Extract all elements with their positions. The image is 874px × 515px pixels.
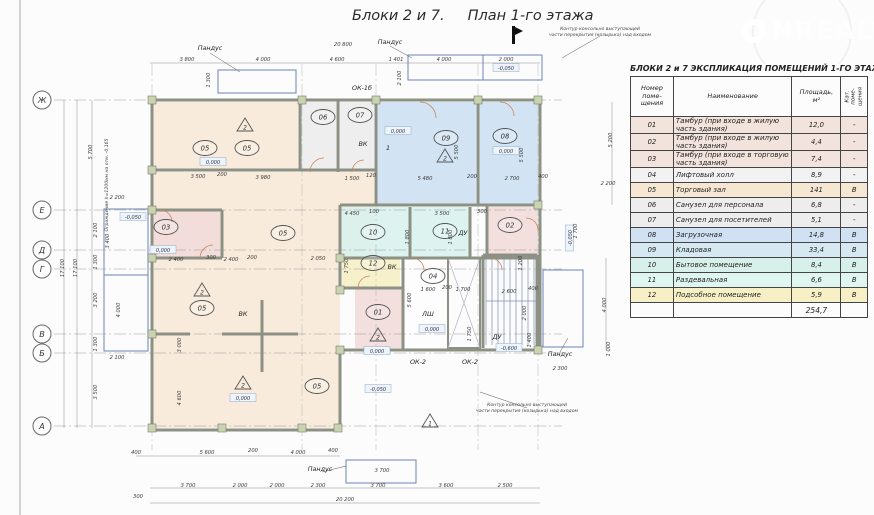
- room-tag-number: 07: [356, 111, 365, 119]
- column-marker: [334, 424, 342, 432]
- dimension-label: 400: [538, 174, 549, 180]
- dimension-label: 1 750: [467, 326, 473, 342]
- onrealt-watermark: NREALT: [742, 16, 874, 45]
- room-name-cell: Санузел для посетителей: [673, 213, 792, 228]
- dimension-label: 4 450: [345, 211, 361, 217]
- plan-label: 1: [386, 144, 390, 152]
- dimension-label: 1 300: [206, 72, 212, 88]
- dimension-label: 2 300: [311, 483, 327, 489]
- room-area-cell: 8,4: [792, 258, 841, 273]
- room-area-cell: 12,0: [792, 117, 841, 134]
- column-marker: [298, 96, 306, 104]
- column-marker: [148, 96, 156, 104]
- axis-marker-label: Д: [38, 246, 45, 255]
- dimension-label: 2 050: [311, 256, 327, 262]
- svg-text:Контур консольно выступающей: Контур консольно выступающей: [560, 26, 640, 32]
- header-room-number: Номер поме- щения: [631, 77, 674, 117]
- triangle-mark-number: 2: [443, 156, 447, 163]
- note-text: Контур консольно выступающейчасти перекр…: [476, 402, 579, 414]
- level-mark: 0,000: [200, 158, 226, 167]
- room-category-cell: В: [841, 273, 868, 288]
- level-mark: -0,050: [120, 213, 146, 222]
- table-title: БЛОКИ 2 и 7 ЭКСПЛИКАЦИЯ ПОМЕЩЕНИЙ 1-ГО Э…: [630, 64, 870, 73]
- room-name-cell: Загрузочная: [673, 228, 792, 243]
- room-tag-number: 09: [442, 134, 451, 142]
- dimension-label: 3 980: [256, 175, 272, 181]
- triangle-mark-number: 2: [200, 290, 204, 297]
- svg-text:0,000: 0,000: [156, 248, 170, 254]
- plan-label: Пандус: [198, 44, 223, 52]
- svg-text:-0,600: -0,600: [501, 346, 517, 352]
- dimension-label: 4 000: [291, 450, 307, 456]
- room-tag-number: 05: [243, 144, 252, 152]
- dimension-label: 4 600: [177, 390, 183, 406]
- table-row: 09Кладовая33,4В: [631, 243, 868, 258]
- room-area-cell: 141: [792, 183, 841, 198]
- room-number-cell: 06: [631, 198, 674, 213]
- column-marker: [534, 346, 542, 354]
- dimension-label: 1 300: [93, 254, 99, 270]
- column-marker: [148, 254, 156, 262]
- svg-text:0,000: 0,000: [370, 349, 384, 355]
- axis-marker-label: Ж: [37, 96, 47, 105]
- dimension-label: 5 700: [88, 144, 94, 160]
- room-number-cell: 09: [631, 243, 674, 258]
- dimension-label: 3 600: [439, 483, 455, 489]
- total-empty-num: [631, 303, 674, 318]
- room-category-cell: -: [841, 168, 868, 183]
- dimension-label: 400: [131, 450, 142, 456]
- table-row: 07Санузел для посетителей5,1-: [631, 213, 868, 228]
- room-area-cell: 6,8: [792, 198, 841, 213]
- room-area-cell: 8,9: [792, 168, 841, 183]
- room-number-cell: 02: [631, 134, 674, 151]
- axis-marker-label: В: [39, 330, 45, 339]
- dimension-label: 2 000: [499, 57, 515, 63]
- triangle-mark-number: 1: [428, 421, 432, 428]
- note-text: Контур консольно выступающейчасти перекр…: [549, 26, 652, 38]
- dimension-label: 1 300: [93, 336, 99, 352]
- dimension-label: 5 200: [608, 132, 614, 148]
- room-area-cell: 33,4: [792, 243, 841, 258]
- dimension-label: 1 200: [518, 255, 524, 271]
- triangle-mark-number: 2: [243, 125, 247, 132]
- room-region-09: [376, 102, 476, 204]
- dimension-label: 1 500: [345, 176, 361, 182]
- room-category-cell: -: [841, 134, 868, 151]
- dimension-label: 1 400: [527, 332, 533, 348]
- column-marker: [336, 286, 344, 294]
- table-row: 12Подсобное помещение5,9В: [631, 288, 868, 303]
- dimension-label: 5 480: [418, 176, 434, 182]
- room-tag-number: 08: [501, 132, 510, 140]
- room-category-cell: -: [841, 151, 868, 168]
- header-room-category: Кат. поме- щения: [841, 77, 868, 117]
- dimension-label: 300: [206, 255, 217, 261]
- level-mark: 0,000: [419, 325, 445, 334]
- axis-marker-label: Г: [40, 265, 45, 274]
- room-number-cell: 12: [631, 288, 674, 303]
- room-category-cell: В: [841, 228, 868, 243]
- dimension-label: 1 800: [405, 229, 411, 245]
- dimension-label: 200: [247, 255, 258, 261]
- dimension-label: 2 700: [505, 176, 521, 182]
- room-tag-number: 05: [313, 382, 322, 390]
- dimension-label: 400: [328, 448, 339, 454]
- dimension-label: 3 700: [371, 483, 387, 489]
- column-marker: [148, 330, 156, 338]
- dimension-label: 3 000: [177, 337, 183, 353]
- dimension-label: 5 500: [454, 144, 460, 160]
- dimension-label: 200: [248, 448, 259, 454]
- column-marker: [148, 206, 156, 214]
- room-number-cell: 07: [631, 213, 674, 228]
- room-tag-number: 12: [369, 259, 378, 267]
- dimension-label: 2 200: [601, 181, 617, 187]
- level-mark: -0,600: [496, 344, 522, 353]
- dimension-label: 2 100: [93, 222, 99, 238]
- svg-text:-0,050: -0,050: [370, 387, 386, 393]
- svg-text:0,000: 0,000: [206, 160, 220, 166]
- table-row: 04Лифтовый холл8,9-: [631, 168, 868, 183]
- dimension-label: 4 600: [330, 57, 346, 63]
- dimension-label: 100: [369, 209, 380, 215]
- plan-label: ДУ: [492, 333, 503, 341]
- room-name-cell: Раздевальная: [673, 273, 792, 288]
- dimension-label: 4 000: [256, 57, 272, 63]
- plan-label: ДУ: [458, 229, 469, 237]
- table-row: 06Санузел для персонала6,8-: [631, 198, 868, 213]
- column-marker: [298, 424, 306, 432]
- page-title: Блоки 2 и 7. План 1-го этажа: [352, 8, 594, 24]
- dimension-label: 3 500: [191, 174, 207, 180]
- column-marker: [534, 96, 542, 104]
- dimension-label: 2 400: [169, 257, 185, 263]
- dimension-label: 2 600: [502, 289, 518, 295]
- dimension-label: 3 500: [93, 384, 99, 400]
- room-name-cell: Тамбур (при входе в жилую часть здания): [673, 134, 792, 151]
- room-area-cell: 5,9: [792, 288, 841, 303]
- room-tag-number: 06: [319, 113, 328, 121]
- dimension-label: 3 700: [375, 468, 391, 474]
- table-row: 11Раздевальная6,6В: [631, 273, 868, 288]
- room-name-cell: Бытовое помещение: [673, 258, 792, 273]
- room-tag-number: 03: [162, 223, 171, 231]
- svg-text:-0,050: -0,050: [498, 66, 514, 72]
- room-category-cell: В: [841, 183, 868, 198]
- level-mark: -0,050: [365, 385, 391, 394]
- dimension-label: 2 200: [110, 195, 126, 201]
- stair-treads: [486, 258, 537, 345]
- dimension-label: 5 600: [407, 292, 413, 308]
- level-mark: 0,000: [385, 127, 411, 136]
- plan-label: ВК: [239, 310, 248, 318]
- dimension-label: 120: [366, 173, 377, 179]
- dimension-label: 3 700: [181, 483, 197, 489]
- dimension-label: 200: [217, 172, 228, 178]
- dimension-label: 1 700: [573, 223, 579, 239]
- table-row: 02Тамбур (при входе в жилую часть здания…: [631, 134, 868, 151]
- room-area-cell: 7,4: [792, 151, 841, 168]
- room-tag-number: 04: [429, 272, 438, 280]
- table-row: 01Тамбур (при входе в жилую часть здания…: [631, 117, 868, 134]
- room-number-cell: 04: [631, 168, 674, 183]
- dimension-label: 1 000: [606, 341, 612, 357]
- column-marker: [372, 96, 380, 104]
- room-number-cell: 11: [631, 273, 674, 288]
- svg-text:Контур консольно выступающей: Контур консольно выступающей: [487, 402, 567, 408]
- table-row: 03Тамбур (при входе в торговую часть зда…: [631, 151, 868, 168]
- dimension-label: 200: [442, 285, 453, 291]
- total-empty-name: [673, 303, 792, 318]
- total-empty-cat: [841, 303, 868, 318]
- room-name-cell: Торговый зал: [673, 183, 792, 198]
- room-number-cell: 03: [631, 151, 674, 168]
- dimension-label: 2 100: [110, 355, 126, 361]
- dimension-label: 3 400: [105, 233, 111, 249]
- level-mark: 0,000: [230, 394, 256, 403]
- dimension-label: 1 401: [389, 57, 404, 63]
- lift-shaft-cross: [448, 258, 480, 348]
- watermark-text: NREALT: [772, 16, 874, 45]
- level-mark: -0,050: [493, 64, 519, 73]
- dimension-label: 2 000: [522, 305, 528, 321]
- dimension-label: 1 800: [448, 229, 454, 245]
- room-tag-number: 05: [198, 304, 207, 312]
- plan-label: Пандус: [548, 350, 573, 358]
- room-category-cell: -: [841, 198, 868, 213]
- room-name-cell: Лифтовый холл: [673, 168, 792, 183]
- dimension-label: 1 750: [344, 258, 350, 274]
- dimension-label: 4 000: [602, 297, 608, 313]
- room-tag-number: 10: [369, 228, 378, 236]
- room-category-cell: -: [841, 213, 868, 228]
- dimension-label: 5 500: [519, 147, 525, 163]
- room-area-cell: 4,4: [792, 134, 841, 151]
- plan-label: ВК: [359, 140, 368, 148]
- svg-text:-0,050: -0,050: [125, 215, 141, 221]
- column-marker: [474, 96, 482, 104]
- svg-text:Ограждение h=1200мм на отм. -0: Ограждение h=1200мм на отм. -0,165: [104, 138, 110, 231]
- onrealt-logo-icon: [742, 19, 766, 43]
- table-row: 05Торговый зал141В: [631, 183, 868, 198]
- room-tag-number: 05: [201, 144, 210, 152]
- dimension-label: 3 800: [180, 57, 196, 63]
- column-marker: [336, 254, 344, 262]
- dimension-label: 2 500: [498, 483, 514, 489]
- table-header: Номер поме- щения Наименование Площадь, …: [631, 77, 868, 117]
- column-marker: [336, 346, 344, 354]
- room-category-cell: -: [841, 117, 868, 134]
- room-number-cell: 08: [631, 228, 674, 243]
- room-number-cell: 10: [631, 258, 674, 273]
- column-marker: [218, 424, 226, 432]
- room-tag-number: 01: [374, 308, 383, 316]
- dimension-label: 4 000: [437, 57, 453, 63]
- dimension-label: 300: [133, 494, 144, 500]
- plan-label: ВК: [388, 263, 397, 271]
- plan-label: ОК-2: [410, 358, 426, 366]
- dimension-label: 20 800: [334, 42, 353, 48]
- dimension-label: 3 500: [435, 211, 451, 217]
- column-marker: [148, 166, 156, 174]
- axis-marker-label: Б: [39, 349, 45, 358]
- dimension-label: 400: [528, 286, 539, 292]
- plan-label: ЛШ: [421, 310, 434, 318]
- room-area-cell: 14,8: [792, 228, 841, 243]
- axis-marker-label: А: [38, 422, 44, 431]
- svg-text:0,000: 0,000: [236, 396, 250, 402]
- column-marker: [534, 201, 542, 209]
- dimension-label: 1 700: [456, 287, 472, 293]
- plan-label: ОК-2: [462, 358, 478, 366]
- room-name-cell: Тамбур (при входе в торговую часть здани…: [673, 151, 792, 168]
- level-mark: 0,000: [150, 246, 176, 255]
- level-mark: 0,000: [364, 347, 390, 356]
- table-row: 10Бытовое помещение8,4В: [631, 258, 868, 273]
- dimension-label: 1 600: [421, 287, 437, 293]
- svg-text:части перекрытия (козырька) на: части перекрытия (козырька) над входом: [476, 408, 579, 414]
- room-category-cell: В: [841, 243, 868, 258]
- dimension-label: 5 600: [200, 450, 216, 456]
- room-number-cell: 01: [631, 117, 674, 134]
- room-area-cell: 6,6: [792, 273, 841, 288]
- dimension-label: 200: [467, 174, 478, 180]
- note-text: Ограждение h=1200мм на отм. -0,165: [104, 138, 110, 231]
- room-number-cell: 05: [631, 183, 674, 198]
- dimension-label: 20 200: [336, 497, 355, 503]
- svg-text:части перекрытия (козырька) на: части перекрытия (козырька) над входом: [549, 32, 652, 38]
- column-marker: [148, 424, 156, 432]
- room-category-cell: В: [841, 258, 868, 273]
- level-mark: 0,000: [493, 147, 519, 156]
- plan-label: Пандус: [378, 38, 403, 46]
- room-category-cell: В: [841, 288, 868, 303]
- dimension-label: 3 200: [93, 292, 99, 308]
- screenshot-root: Блоки 2 и 7. План 1-го этажа ЖЕДГВБА: [0, 0, 874, 515]
- header-room-name: Наименование: [673, 77, 792, 117]
- dimension-label: 2 100: [397, 70, 403, 86]
- plan-label: ОК-1б: [352, 84, 372, 92]
- dimension-label: 2 000: [270, 483, 286, 489]
- room-name-cell: Санузел для персонала: [673, 198, 792, 213]
- svg-text:0,000: 0,000: [391, 129, 405, 135]
- room-tag-number: 05: [279, 229, 288, 237]
- table-total-row: 254,7: [631, 303, 868, 318]
- room-name-cell: Тамбур (при входе в жилую часть здания): [673, 117, 792, 134]
- dimension-label: 300: [477, 209, 488, 215]
- section-marker: [512, 26, 523, 44]
- explication-table: БЛОКИ 2 и 7 ЭКСПЛИКАЦИЯ ПОМЕЩЕНИЙ 1-ГО Э…: [630, 64, 870, 318]
- room-area-cell: 5,1: [792, 213, 841, 228]
- header-room-area: Площадь, м²: [792, 77, 841, 117]
- room-name-cell: Подсобное помещение: [673, 288, 792, 303]
- room-name-cell: Кладовая: [673, 243, 792, 258]
- dimension-label: 2 400: [224, 257, 240, 263]
- plan-label: Пандус: [308, 465, 333, 473]
- triangle-mark-number: 2: [241, 383, 245, 390]
- dimension-label: 17 100: [73, 258, 79, 277]
- dimension-label: 2 300: [553, 366, 569, 372]
- dimension-label: 4 000: [116, 302, 122, 318]
- room-tag-number: 02: [506, 221, 515, 229]
- table-row: 08Загрузочная14,8В: [631, 228, 868, 243]
- svg-text:0,000: 0,000: [425, 327, 439, 333]
- triangle-mark-number: 2: [376, 335, 380, 342]
- dimension-label: 17 100: [60, 258, 66, 277]
- svg-text:0,000: 0,000: [499, 149, 513, 155]
- dimension-label: 2 000: [233, 483, 249, 489]
- total-area-value: 254,7: [792, 303, 841, 318]
